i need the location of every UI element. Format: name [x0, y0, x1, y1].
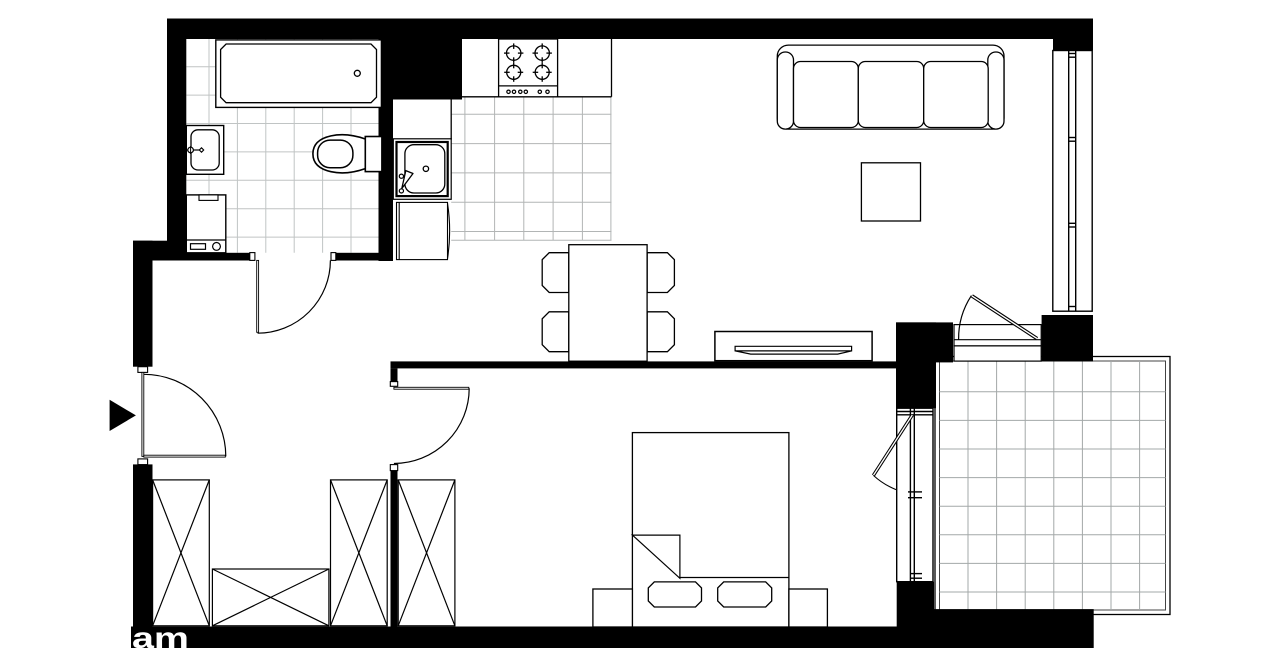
svg-text:am: am — [132, 622, 189, 655]
